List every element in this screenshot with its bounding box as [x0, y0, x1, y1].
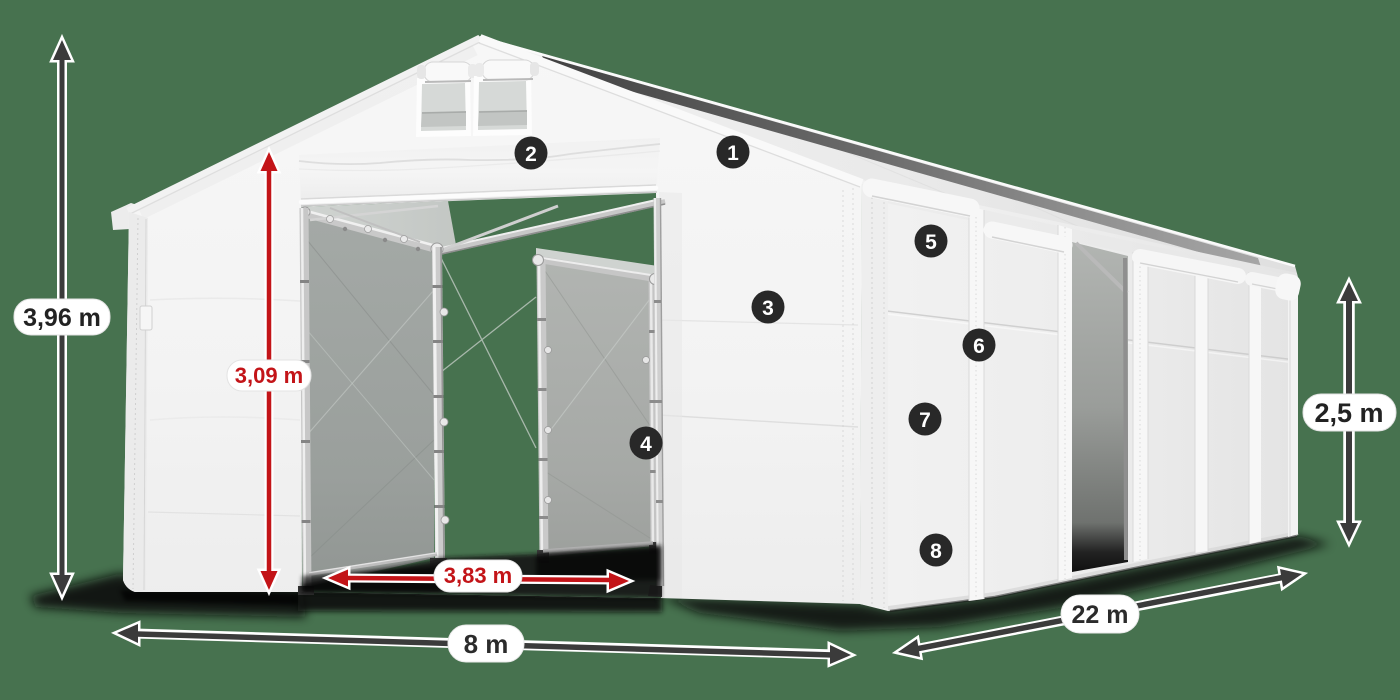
svg-text:2: 2: [525, 143, 537, 166]
svg-text:3: 3: [762, 297, 774, 320]
svg-text:3,09 m: 3,09 m: [235, 363, 304, 388]
svg-text:8 m: 8 m: [464, 629, 509, 659]
svg-text:6: 6: [973, 335, 985, 358]
svg-text:1: 1: [727, 142, 739, 165]
svg-text:2,5 m: 2,5 m: [1314, 398, 1383, 428]
svg-text:3,83 m: 3,83 m: [444, 563, 513, 588]
svg-text:3,96 m: 3,96 m: [23, 304, 101, 332]
svg-text:22 m: 22 m: [1072, 601, 1129, 629]
svg-text:7: 7: [919, 409, 931, 432]
svg-text:8: 8: [930, 540, 942, 563]
svg-text:5: 5: [925, 231, 937, 254]
svg-text:4: 4: [640, 433, 652, 456]
